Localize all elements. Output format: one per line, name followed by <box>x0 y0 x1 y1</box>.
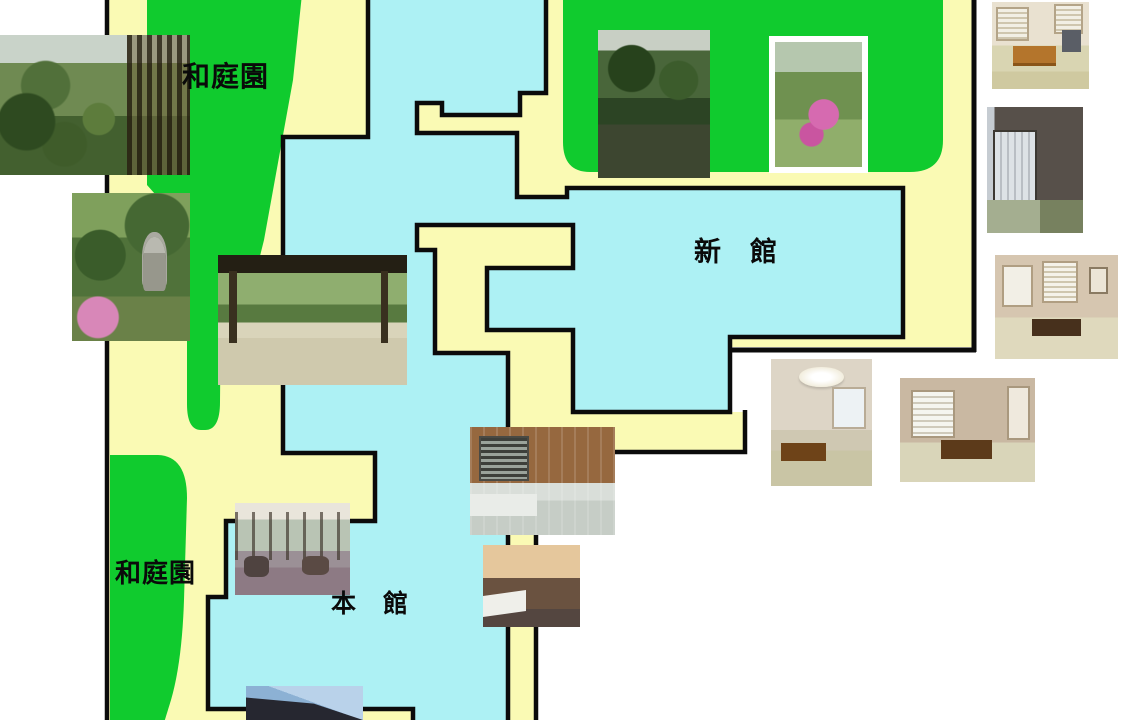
wall-art-shape <box>1089 267 1108 294</box>
bamboo-fence-shape <box>127 35 190 175</box>
stone-lantern-shape <box>143 237 167 290</box>
window-shape <box>1002 265 1033 306</box>
low-table-shape <box>1013 46 1056 63</box>
guest-room-pendant-lamp-photo <box>771 359 872 486</box>
shoji-window-shape <box>1042 261 1078 302</box>
guest-room-corner-photo <box>995 255 1118 359</box>
window-shape <box>1007 386 1030 440</box>
azalea-garden-photo <box>769 36 868 173</box>
bathtub-photo <box>483 545 580 627</box>
tiled-bath-photo <box>470 427 615 535</box>
roof-shape <box>246 686 363 720</box>
window-shape <box>996 7 1029 41</box>
low-table-shape <box>1032 319 1081 336</box>
bath-window-shape <box>479 436 529 481</box>
tub-edge-shape <box>483 590 526 617</box>
grounds-bottom-strip <box>355 711 415 720</box>
stone-lantern-garden-photo <box>72 193 190 341</box>
glass-wall-shape <box>235 512 350 560</box>
garden-label-top: 和庭園 <box>182 63 269 91</box>
new-wing-garden-photo <box>598 30 710 178</box>
lounge-chair-shape <box>244 556 269 576</box>
pillar-shape <box>229 271 237 344</box>
lobby-lounge-photo <box>235 503 350 595</box>
bathtub-shape <box>470 494 537 516</box>
pillar-shape <box>381 271 389 344</box>
window-shape <box>832 387 866 429</box>
guest-room-wide-photo <box>900 378 1035 482</box>
shoji-window-shape <box>993 130 1037 207</box>
guest-room-shoji-photo <box>987 107 1083 233</box>
ryokan-site-map: 和庭園 新 館 本 館 和庭園 <box>0 0 1122 720</box>
tatami-floor-shape <box>987 200 1083 233</box>
low-table-shape <box>781 443 825 461</box>
garden-panorama-photo <box>0 35 190 175</box>
tv-shape <box>1062 30 1081 53</box>
pendant-lamp-shape <box>799 367 843 387</box>
engawa-garden-view-photo <box>218 255 407 385</box>
guest-room-low-table-photo <box>992 2 1089 89</box>
new-wing-label: 新 館 <box>694 239 778 266</box>
low-table-shape <box>941 440 992 459</box>
main-wing-label: 本 館 <box>331 592 409 617</box>
shoji-window-shape <box>911 390 956 438</box>
garden-label-bottom: 和庭園 <box>115 560 196 586</box>
lounge-chair-shape <box>302 556 330 574</box>
roof-sky-photo <box>246 686 363 720</box>
